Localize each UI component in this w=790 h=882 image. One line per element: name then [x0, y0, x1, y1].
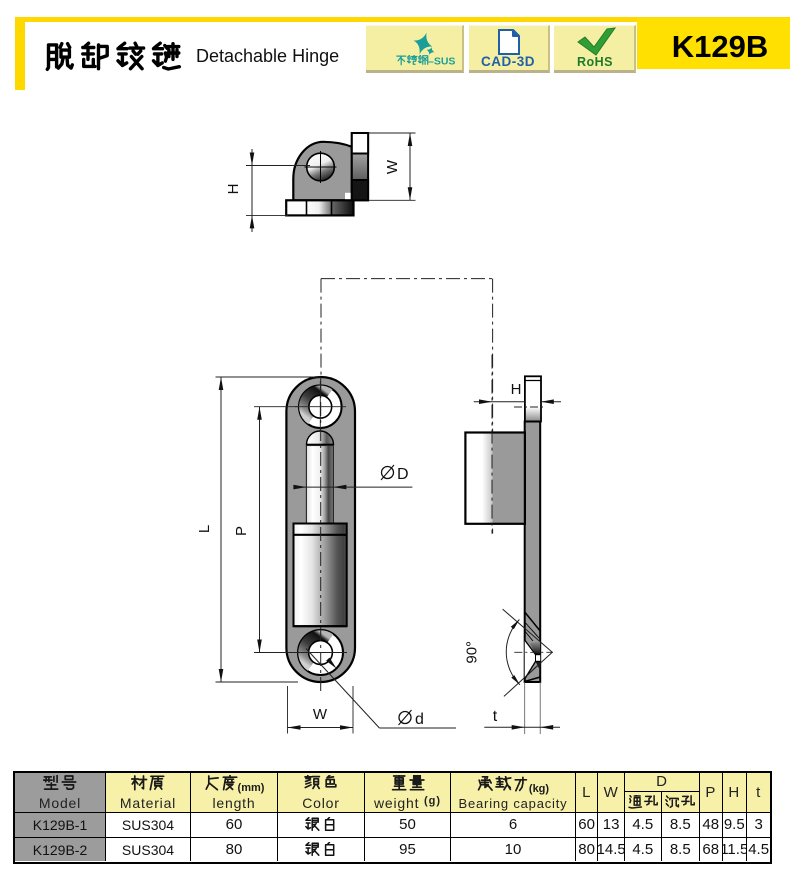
svg-text:W: W	[384, 159, 401, 174]
svg-text:D: D	[397, 466, 409, 483]
svg-text:t: t	[493, 708, 498, 725]
svg-text:P: P	[233, 526, 250, 536]
svg-text:d: d	[415, 711, 424, 728]
svg-text:H: H	[511, 381, 522, 398]
svg-text:H: H	[225, 184, 242, 195]
svg-text:W: W	[313, 706, 328, 723]
svg-text:L: L	[196, 525, 213, 533]
svg-text:90°: 90°	[464, 641, 481, 664]
